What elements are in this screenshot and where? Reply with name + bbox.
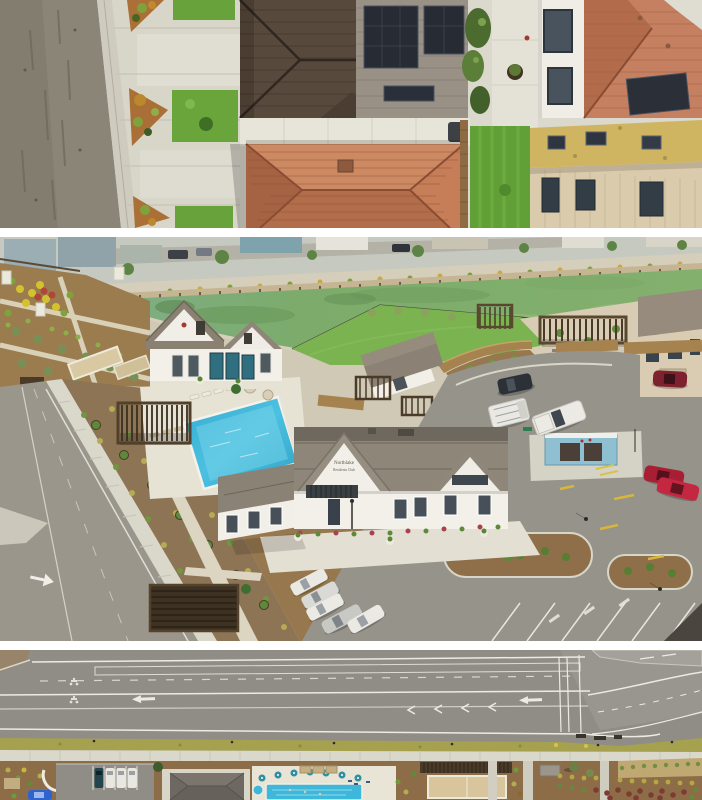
aerial-rooftops-image: [0, 0, 702, 228]
wreath: [182, 323, 187, 328]
entry-awning: [306, 485, 358, 498]
tile-roof-right: [584, 0, 702, 118]
street-sign: [523, 427, 532, 431]
small-parking-lot: [56, 764, 154, 800]
clubhouse-sign-line2: Residents Club: [333, 468, 355, 472]
side-courtyard: [492, 0, 538, 130]
palm-tree: [231, 384, 241, 394]
solar-panel-roof: [356, 0, 468, 118]
photo-gap: [0, 641, 702, 650]
boulevard-image: [0, 650, 702, 800]
turf-yard: [470, 126, 530, 228]
tile-roof-house: [230, 140, 464, 228]
yellow-roof-building: [530, 120, 702, 228]
entry-door: [328, 499, 340, 525]
garden-shed: [540, 765, 560, 776]
amenity-center-image: Northlake Residents Club: [0, 237, 702, 641]
gallery-photo-rooftops[interactable]: [0, 0, 702, 228]
white-wall-house: [538, 0, 584, 118]
gallery-photo-boulevard[interactable]: [0, 650, 702, 800]
teal-doors: [210, 353, 254, 379]
palm-tree: [241, 584, 251, 594]
mail-kiosk: [529, 429, 643, 481]
parking-island-2: [608, 555, 692, 589]
clubhouse-sign-line1: Northlake: [334, 461, 355, 466]
umbrella: [263, 390, 273, 400]
gallery-photo-amenity-center[interactable]: Northlake Residents Club: [0, 237, 702, 641]
wood-fence: [460, 120, 468, 228]
south-pergola: [150, 585, 238, 631]
photo-gap: [0, 228, 702, 237]
dark-red-car: [652, 370, 689, 390]
blue-car: [28, 790, 52, 800]
photo-collage: Northlake Residents Club: [0, 0, 702, 800]
pool-topdown: [252, 766, 396, 800]
